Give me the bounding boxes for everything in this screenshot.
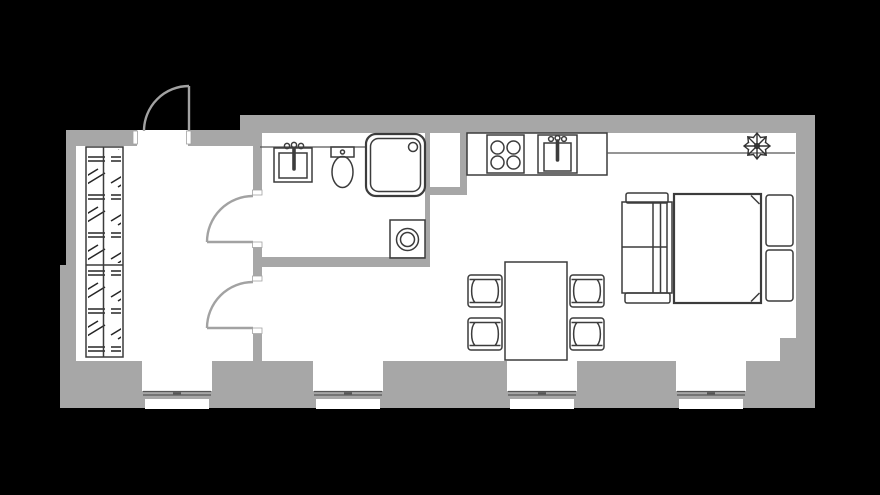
wall-right <box>796 115 815 340</box>
wall-top-hall-left <box>68 130 137 146</box>
wall-divider-c <box>253 334 262 361</box>
window-icon <box>313 361 383 409</box>
wall-left-upper <box>66 130 76 265</box>
window-icon <box>676 361 746 409</box>
entrance-opening <box>137 130 188 146</box>
wall-top-main <box>240 115 815 133</box>
plant-icon <box>744 133 770 159</box>
wall-left-lower <box>60 265 76 361</box>
wall-duct-right <box>460 133 467 187</box>
floor-plan-page <box>0 0 880 495</box>
wall-divider-a <box>253 133 262 190</box>
wardrobe-icon <box>86 147 123 357</box>
wall-right-step <box>780 338 815 361</box>
floor-plan-image <box>0 0 880 495</box>
window-icon <box>507 361 577 409</box>
wall-duct-bottom <box>425 187 467 195</box>
window-icon <box>142 361 212 409</box>
floor-areas <box>72 130 796 361</box>
